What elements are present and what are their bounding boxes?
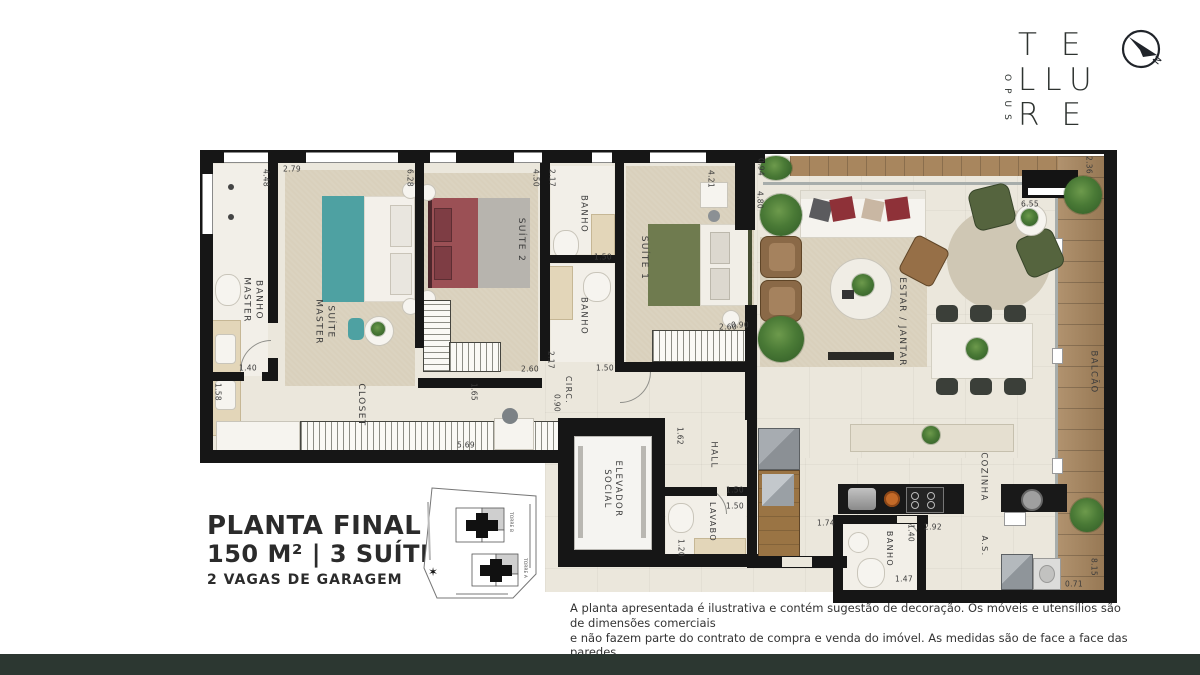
plant <box>758 316 804 362</box>
dimension-label: 1.58 <box>214 383 223 401</box>
washer <box>1001 554 1033 590</box>
sink <box>215 334 236 364</box>
terrace-glass-top <box>763 182 1060 185</box>
plant <box>1021 209 1038 226</box>
closet-bench <box>216 421 300 451</box>
plant <box>966 338 988 360</box>
dimension-label: 1.65 <box>470 383 479 401</box>
toilet <box>668 503 694 533</box>
toilet <box>215 274 241 306</box>
window <box>430 152 456 163</box>
dimension-label: 1.50 <box>596 364 614 373</box>
dimension-label: 1.47 <box>895 575 913 584</box>
dimension-label: 4.50 <box>532 169 541 187</box>
dimension-label: 1.40 <box>239 364 257 373</box>
shower-head <box>228 214 234 220</box>
dining-chair <box>936 378 958 395</box>
fridge <box>758 428 800 470</box>
room-label: SUÍTE 2 <box>514 218 526 263</box>
dimension-label: 1.50 <box>726 486 744 495</box>
window <box>650 152 706 163</box>
room-label: A.S. <box>979 535 989 556</box>
armchair-brown <box>760 236 802 278</box>
laundry-tank <box>1033 558 1061 590</box>
torre-b-label: TORRE B <box>508 511 514 532</box>
page: BANHO MASTERSUÍTE MASTERSUÍTE 2BANHOBANH… <box>0 0 1200 675</box>
plant <box>1070 498 1104 532</box>
round-sink <box>848 532 869 553</box>
brand-line-2: LLU <box>1018 63 1101 98</box>
room-label: BANHO <box>577 297 588 335</box>
dimension-label: 4.48 <box>262 169 271 187</box>
dining-chair <box>936 305 958 322</box>
dimension-label: 5.69 <box>457 441 475 450</box>
brand-logo: OPUS TE LLU RE <box>1002 28 1092 133</box>
dimension-label: 1.50 <box>726 502 744 511</box>
shower-head <box>228 184 234 190</box>
dimension-label: 6.55 <box>1021 200 1039 209</box>
torre-a-label: TORRE A <box>522 557 528 579</box>
brand-line-3: RE <box>1018 98 1114 133</box>
cabinet-mirror <box>762 474 794 506</box>
site-key-map: TORRE B TORRE A ✶ <box>416 482 548 604</box>
dimension-label: 6.28 <box>406 169 415 187</box>
kitchen-counter-right <box>1001 484 1067 512</box>
plant <box>852 274 874 296</box>
room-label: CLOSET <box>354 383 366 426</box>
plant <box>922 426 940 444</box>
window <box>592 152 612 163</box>
table-books <box>842 290 854 299</box>
suite2-closet <box>449 342 501 372</box>
dimension-label: 1.50 <box>594 253 612 262</box>
room-label: SUÍTE 1 <box>637 236 649 281</box>
window <box>306 152 398 163</box>
room-label: BALCÃO <box>1087 350 1098 393</box>
vanity <box>549 266 573 320</box>
dimension-label: 2.60 <box>521 365 539 374</box>
dimension-label: 1.40 <box>907 524 916 542</box>
dimension-label: 2.17 <box>548 169 557 187</box>
elevator-rail <box>578 446 583 538</box>
window <box>514 152 542 163</box>
room-label: ELEVADOR SOCIAL <box>601 461 623 518</box>
room-label: LAVABO <box>707 502 717 542</box>
stool <box>708 210 720 222</box>
brand-opus: OPUS <box>1002 74 1012 127</box>
brand-wordmark: TE LLU RE <box>1018 28 1092 133</box>
dimension-label: 1.20 <box>677 539 686 557</box>
footer-bar <box>0 654 1200 675</box>
room-label: BANHO <box>884 531 894 567</box>
dimension-label: 2.17 <box>547 351 556 369</box>
dimension-label: 0.71 <box>1065 580 1083 589</box>
room-label: SUÍTE MASTER <box>312 299 335 344</box>
vanity <box>694 538 746 555</box>
brand-line-1: TE <box>1018 28 1116 63</box>
dimension-label: 4.21 <box>707 170 716 188</box>
glass-pillar <box>1052 348 1063 364</box>
dimension-label: 2.79 <box>283 165 301 174</box>
plant <box>1064 176 1102 214</box>
suite-master-bed <box>322 196 418 302</box>
room-label: BANHO <box>577 195 588 233</box>
dimension-label: 2.92 <box>924 523 942 532</box>
room-label: ESTAR / JANTAR <box>895 277 907 367</box>
dining-chair <box>970 378 992 395</box>
dining-chair <box>1004 378 1026 395</box>
dimension-label: 0.94 <box>757 158 766 176</box>
balcony-top-deck <box>790 156 1058 176</box>
room-label: CIRC. <box>563 376 573 404</box>
balcony-planter-inner <box>1028 188 1066 195</box>
suite2-closet <box>423 300 451 372</box>
dimension-label: 1.62 <box>676 427 685 445</box>
sideboard <box>828 352 894 360</box>
plant <box>371 322 385 336</box>
suite1-closet <box>652 330 756 362</box>
dimension-label: 2.36 <box>1085 156 1094 174</box>
sofa <box>800 190 926 238</box>
map-star-icon: ✶ <box>428 565 438 579</box>
dimension-label: 0.90 <box>553 394 562 412</box>
dimension-label: 8.15 <box>1090 558 1099 576</box>
room-label: BANHO MASTER <box>240 277 263 322</box>
compass-n: N <box>1151 54 1164 67</box>
room-label: HALL <box>707 441 718 468</box>
room-label: COZINHA <box>977 452 988 501</box>
dimension-label: 1.74 <box>817 519 835 528</box>
compass-icon: N <box>1116 24 1170 78</box>
toilet <box>857 558 885 588</box>
window <box>224 152 268 163</box>
elevator-rail <box>641 446 646 538</box>
kitchen-counter-left <box>838 484 964 514</box>
suite1-bed <box>648 224 752 306</box>
dining-chair <box>970 305 992 322</box>
stool <box>348 318 364 340</box>
window <box>202 174 213 234</box>
disclaimer-line-1: A planta apresentada é ilustrativa e con… <box>570 601 1130 631</box>
plant <box>760 194 802 236</box>
dining-chair <box>1004 305 1026 322</box>
glass-pillar <box>1052 458 1063 474</box>
dimension-label: 4.80 <box>756 191 765 209</box>
dimension-label: 0.90 <box>731 321 749 330</box>
desk-chair <box>502 408 518 424</box>
kitchen-sink-cabinet <box>1004 512 1026 526</box>
